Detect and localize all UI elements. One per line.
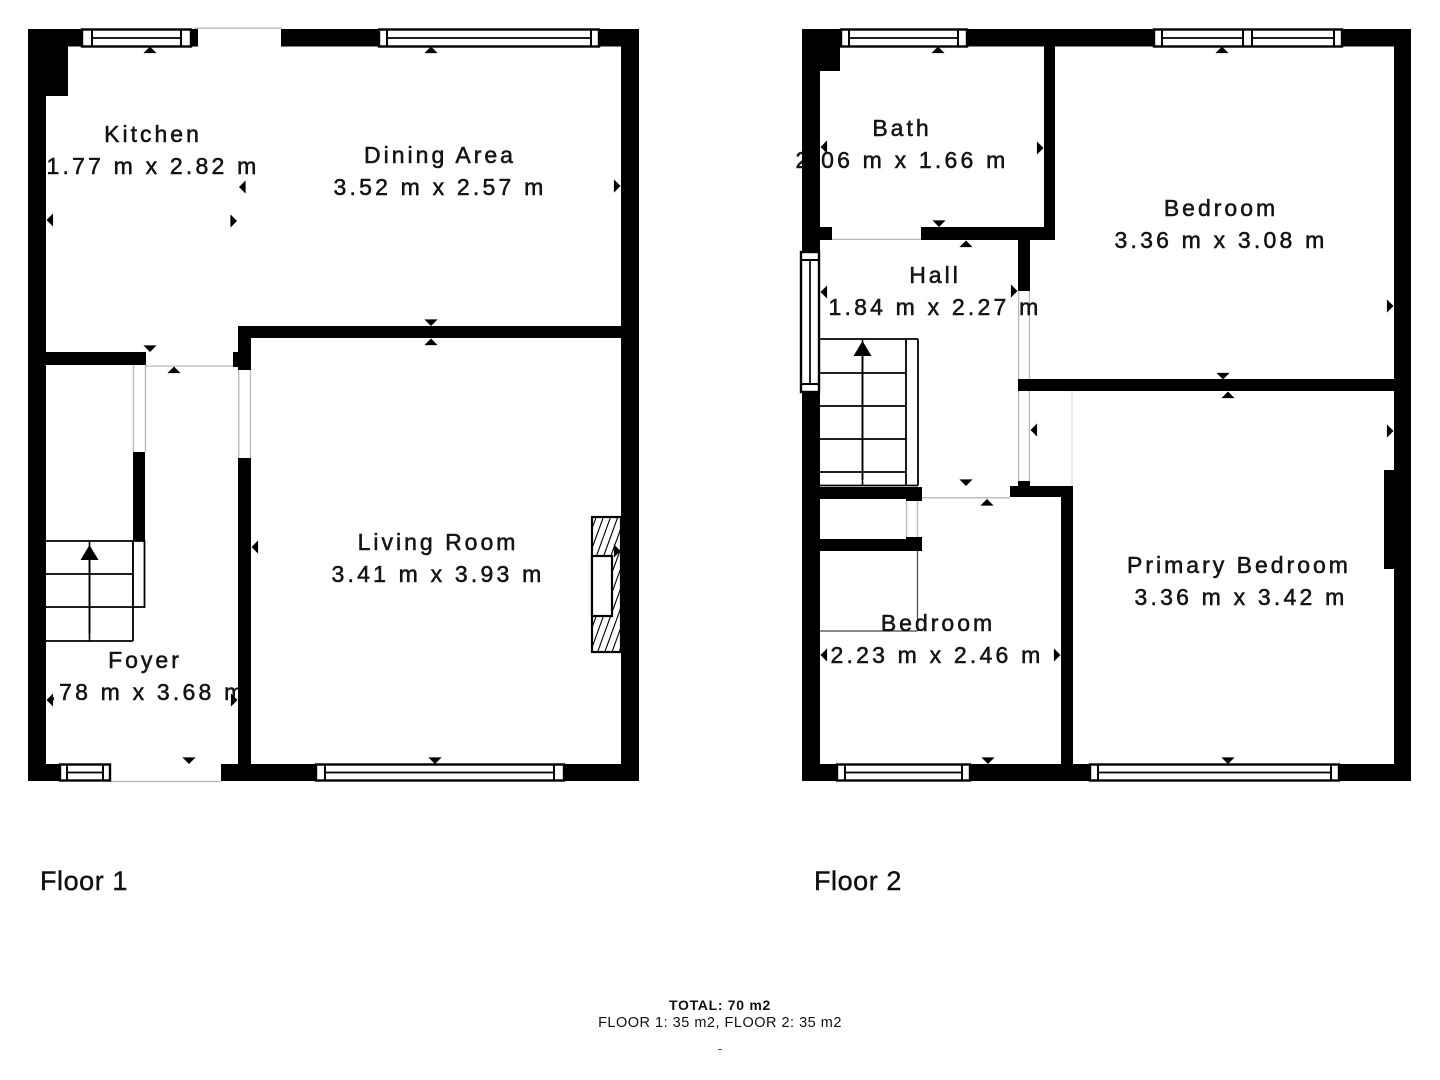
svg-text:3.41 m x 3.93 m: 3.41 m x 3.93 m — [332, 561, 545, 587]
svg-text:Foyer: Foyer — [108, 647, 182, 673]
svg-text:Bedroom: Bedroom — [1164, 195, 1278, 221]
svg-text:Primary Bedroom: Primary Bedroom — [1127, 552, 1351, 578]
svg-text:2.06 m x 1.66 m: 2.06 m x 1.66 m — [796, 147, 1009, 173]
svg-text:Floor 1: Floor 1 — [40, 866, 128, 896]
svg-text:3.36 m x 3.08 m: 3.36 m x 3.08 m — [1115, 227, 1328, 253]
svg-text:Bath: Bath — [872, 115, 931, 141]
svg-text:Bedroom: Bedroom — [881, 610, 995, 636]
svg-text:3.52 m x 2.57 m: 3.52 m x 2.57 m — [334, 174, 547, 200]
svg-text:Living Room: Living Room — [358, 529, 519, 555]
svg-text:1.78 m x 3.68 m: 1.78 m x 3.68 m — [34, 679, 247, 705]
svg-text:-: - — [718, 1041, 722, 1056]
svg-text:TOTAL: 70 m2: TOTAL: 70 m2 — [669, 997, 771, 1013]
svg-text:Kitchen: Kitchen — [104, 121, 202, 147]
svg-text:1.77 m x 2.82 m: 1.77 m x 2.82 m — [47, 153, 260, 179]
svg-text:2.23 m x 2.46 m: 2.23 m x 2.46 m — [831, 642, 1044, 668]
svg-text:Hall: Hall — [909, 262, 961, 288]
svg-text:1.84 m x 2.27 m: 1.84 m x 2.27 m — [829, 294, 1042, 320]
svg-text:Floor 2: Floor 2 — [814, 866, 902, 896]
svg-text:FLOOR 1: 35 m2, FLOOR 2: 35 m2: FLOOR 1: 35 m2, FLOOR 2: 35 m2 — [598, 1015, 842, 1031]
svg-text:Dining Area: Dining Area — [364, 142, 516, 168]
svg-text:3.36 m x 3.42 m: 3.36 m x 3.42 m — [1135, 584, 1348, 610]
